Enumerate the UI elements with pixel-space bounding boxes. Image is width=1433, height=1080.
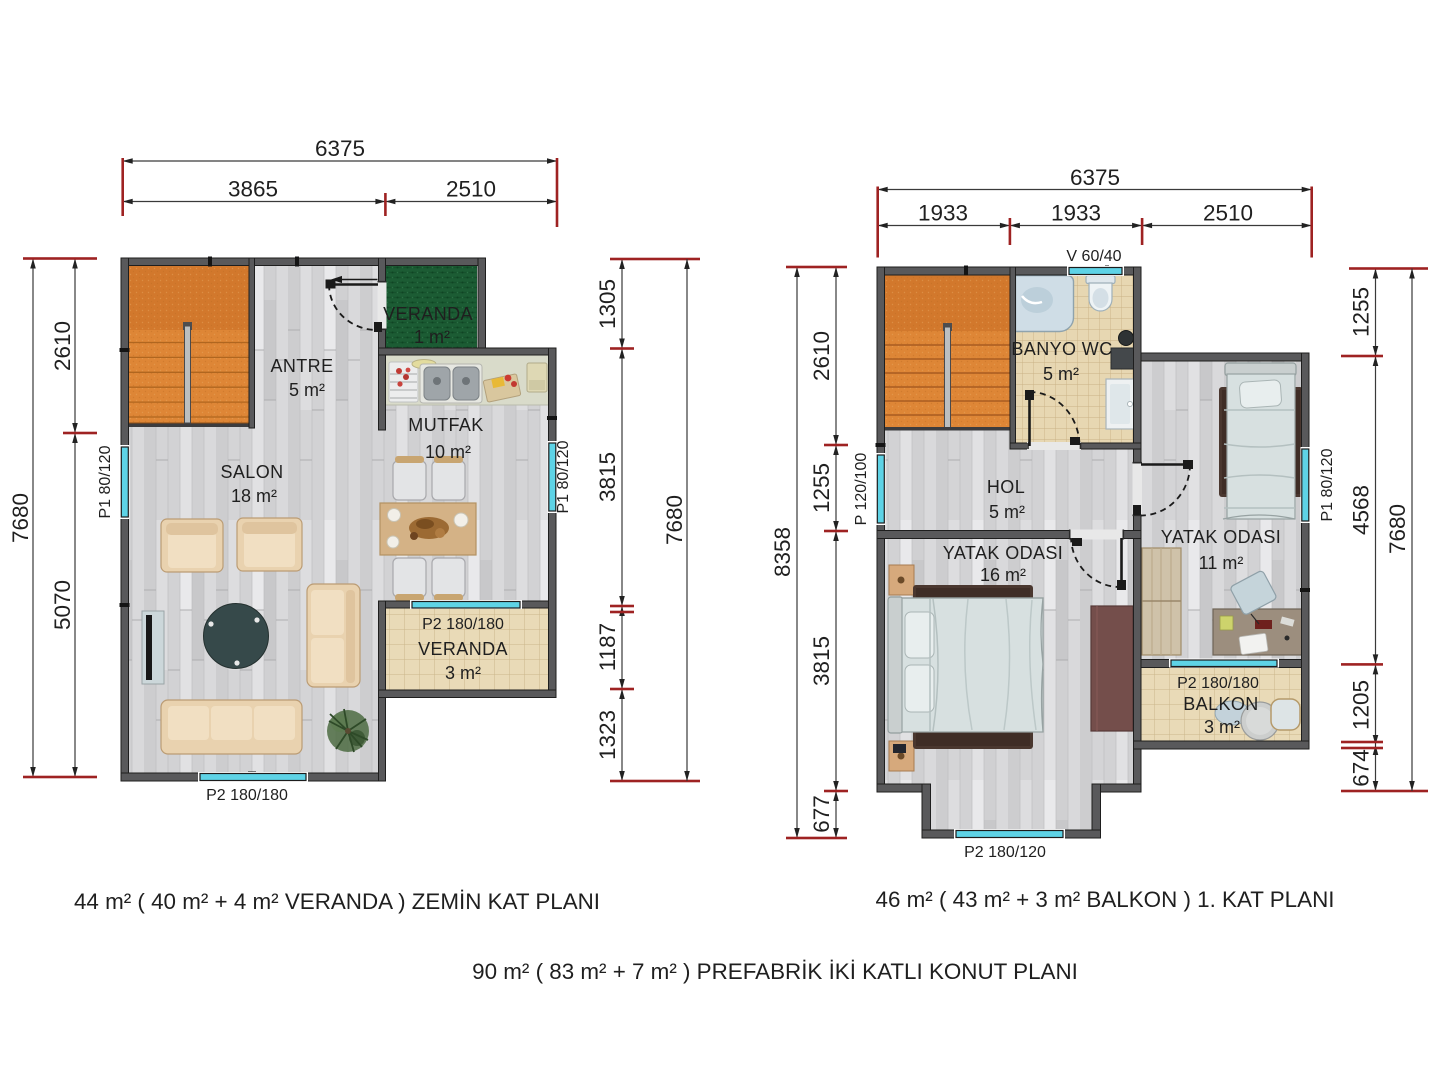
svg-text:P2 180/180: P2 180/180	[206, 787, 288, 804]
svg-text:2510: 2510	[446, 177, 496, 202]
svg-text:VERANDA: VERANDA	[383, 304, 473, 324]
svg-text:P 120/100: P 120/100	[853, 453, 870, 526]
svg-text:7680: 7680	[1385, 504, 1410, 554]
svg-text:1 m²: 1 m²	[414, 327, 450, 347]
svg-text:16 m²: 16 m²	[980, 565, 1026, 585]
svg-text:1323: 1323	[595, 710, 620, 760]
svg-text:674: 674	[1349, 749, 1374, 787]
svg-text:1933: 1933	[918, 201, 968, 226]
svg-text:1933: 1933	[1051, 201, 1101, 226]
svg-text:3 m²: 3 m²	[1204, 717, 1240, 737]
svg-text:8358: 8358	[770, 527, 795, 577]
svg-text:P1 80/120: P1 80/120	[97, 445, 114, 518]
svg-text:MUTFAK: MUTFAK	[408, 415, 483, 435]
svg-text:1205: 1205	[1349, 680, 1374, 730]
svg-text:YATAK ODASI: YATAK ODASI	[1161, 527, 1281, 547]
svg-text:11 m²: 11 m²	[1199, 553, 1244, 573]
svg-text:1255: 1255	[809, 463, 834, 513]
svg-text:5070: 5070	[50, 580, 75, 630]
svg-text:2610: 2610	[50, 321, 75, 371]
svg-text:ANTRE: ANTRE	[270, 356, 333, 376]
svg-text:2510: 2510	[1203, 201, 1253, 226]
svg-text:677: 677	[809, 795, 834, 833]
svg-text:4568: 4568	[1349, 485, 1374, 535]
svg-text:P2 180/180: P2 180/180	[1177, 675, 1259, 692]
svg-text:3865: 3865	[228, 177, 278, 202]
svg-text:2610: 2610	[809, 331, 834, 381]
svg-text:P1 80/120: P1 80/120	[555, 440, 572, 513]
svg-text:7680: 7680	[662, 495, 687, 545]
svg-text:V 60/40: V 60/40	[1066, 248, 1121, 265]
svg-text:5 m²: 5 m²	[289, 380, 325, 400]
svg-text:P2 180/180: P2 180/180	[422, 616, 504, 633]
svg-text:1187: 1187	[595, 623, 620, 671]
svg-text:10 m²: 10 m²	[425, 442, 471, 462]
svg-text:HOL: HOL	[987, 477, 1025, 497]
svg-text:1255: 1255	[1349, 287, 1374, 337]
svg-text:BANYO WC: BANYO WC	[1011, 339, 1112, 359]
svg-text:BALKON: BALKON	[1183, 694, 1258, 714]
svg-text:46 m² ( 43 m² + 3 m² BALKON: 46 m² ( 43 m² + 3 m² BALKON ) 1. KAT PLA…	[876, 887, 1335, 912]
svg-text:18 m²: 18 m²	[231, 486, 277, 506]
svg-text:3815: 3815	[595, 452, 620, 502]
svg-text:VERANDA: VERANDA	[418, 639, 508, 659]
svg-text:6375: 6375	[1070, 165, 1120, 190]
svg-text:90 m² ( 83 m² + 7 m² ) PREFA: 90 m² ( 83 m² + 7 m² ) PREFABRİK İKİ KAT…	[472, 959, 1078, 984]
svg-text:5 m²: 5 m²	[1043, 364, 1079, 384]
svg-text:6375: 6375	[315, 136, 365, 161]
svg-text:P2 180/120: P2 180/120	[964, 844, 1046, 861]
svg-text:3815: 3815	[809, 636, 834, 686]
svg-text:7680: 7680	[8, 493, 33, 543]
svg-text:P1 80/120: P1 80/120	[1319, 448, 1336, 521]
svg-text:SALON: SALON	[220, 462, 283, 482]
svg-text:5 m²: 5 m²	[989, 502, 1025, 522]
svg-text:YATAK ODASI: YATAK ODASI	[943, 543, 1063, 563]
svg-text:3 m²: 3 m²	[445, 663, 481, 683]
svg-text:1305: 1305	[595, 279, 620, 329]
svg-text:44 m² ( 40 m² + 4 m² VERANDA: 44 m² ( 40 m² + 4 m² VERANDA ) ZEMİN KAT…	[74, 889, 600, 914]
